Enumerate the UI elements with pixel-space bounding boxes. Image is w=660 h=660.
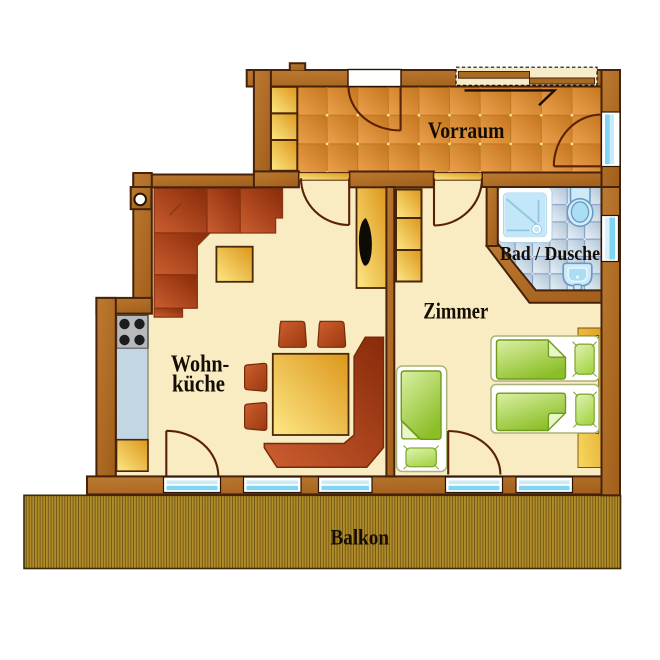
svg-text:Bad / Dusche: Bad / Dusche: [500, 243, 600, 265]
svg-text:küche: küche: [172, 370, 225, 397]
svg-text:Zimmer: Zimmer: [423, 298, 488, 324]
svg-text:Vorraum: Vorraum: [428, 118, 505, 144]
svg-text:Balkon: Balkon: [331, 525, 390, 550]
